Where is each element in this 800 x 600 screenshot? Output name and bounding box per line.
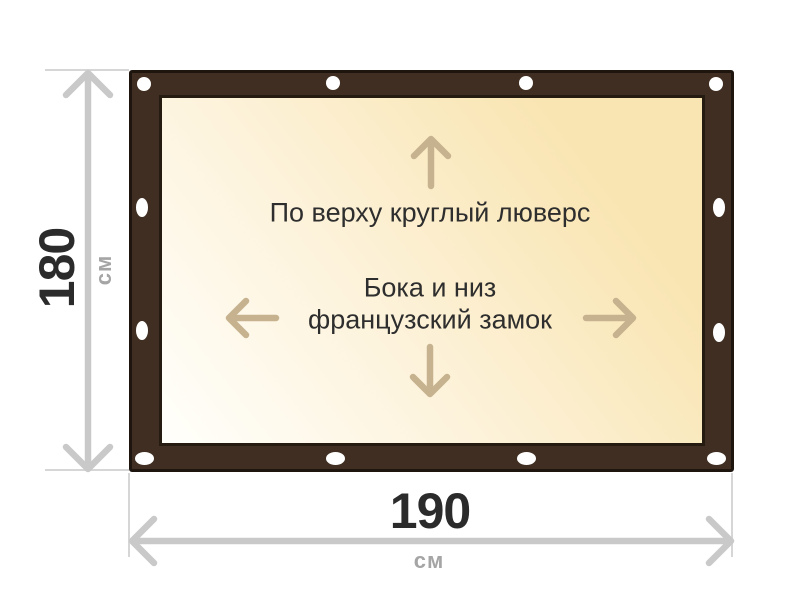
width-unit: см [414,548,445,574]
grommet-icon [137,77,151,91]
width-value: 190 [390,482,470,540]
annotation-top-edge: По верху круглый люверс [270,198,591,229]
annotation-sides-bottom-line2: французский замок [308,305,552,336]
grommet-icon [136,198,148,217]
grommet-icon [713,198,725,217]
annotation-sides-bottom-line1: Бока и низ [364,273,497,304]
tarpaulin-size-diagram: По верху круглый люверс Бока и низ франц… [0,0,800,600]
grommet-icon [326,452,345,465]
tarpaulin-canvas [159,95,705,446]
grommet-icon [517,452,536,465]
grommet-icon [713,323,725,342]
height-unit: см [91,255,117,286]
grommet-icon [519,76,533,90]
grommet-icon [709,77,723,91]
extension-line-width-left [128,473,130,557]
height-value: 180 [28,228,86,308]
grommet-icon [136,321,148,340]
grommet-icon [326,76,340,90]
extension-line-width-right [731,473,733,557]
extension-line-bottom-left [45,469,129,471]
grommet-icon [707,452,726,465]
extension-line-top [45,69,129,71]
grommet-icon [135,452,154,465]
